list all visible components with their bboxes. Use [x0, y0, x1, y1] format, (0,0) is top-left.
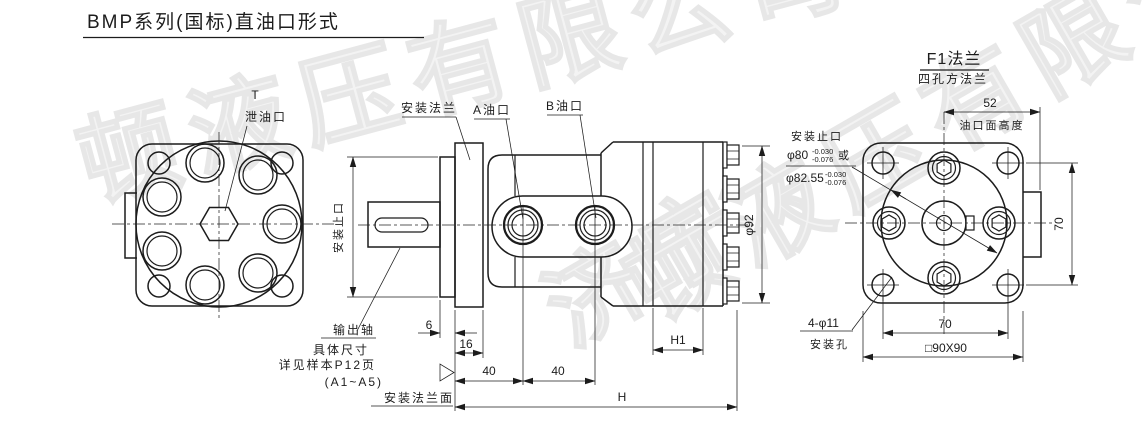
port-b-label: B油口 [546, 99, 584, 113]
port-face-height-label: 油口面高度 [960, 118, 1025, 132]
right-view: F1法兰 四孔方法兰 安装止口 φ80 -0.030 - [786, 50, 1078, 362]
title-block: BMP系列(国标)直油口形式 [83, 11, 424, 38]
dim-h1: H1 [670, 333, 686, 347]
or-word: 或 [838, 149, 851, 162]
dim-70-right: 70 [1052, 217, 1066, 231]
end-bolt [723, 142, 739, 168]
middle-view: 安装止口 [279, 99, 770, 411]
chamfer [601, 297, 613, 306]
spigot-dia-1-tol-dn: -0.076 [812, 155, 833, 164]
mount-hole [867, 269, 899, 301]
dim-body-dia: φ92 [742, 214, 756, 235]
spigot-label-vertical: 安装止口 [331, 201, 345, 253]
leader [456, 117, 470, 160]
pilot-spigot [440, 157, 455, 297]
end-bolt [723, 278, 739, 304]
drain-port-label: 泄油口 [245, 110, 287, 124]
drawing-sheet: 顿液压有限公司 顿液压有限公司 济宁 BMP系列(国标)直油口形式 [0, 0, 1142, 423]
page-title: BMP系列(国标)直油口形式 [87, 11, 340, 33]
corner-hole [148, 275, 170, 297]
bolt-hole [186, 144, 224, 182]
side-tab [125, 193, 137, 258]
end-bolt [723, 210, 739, 236]
t-port-label: T [251, 88, 260, 102]
end-bolt [723, 244, 739, 270]
shaft-note-2: 详见样本P12页 [279, 357, 376, 372]
dim-16: 16 [459, 337, 473, 351]
drain-leader [225, 126, 247, 211]
shaft-note-1: 具体尺寸 [313, 343, 369, 357]
shaft-leader [357, 248, 400, 331]
spigot-dia-leader [852, 167, 997, 253]
bolt-hole [186, 266, 224, 304]
chamfer [601, 142, 613, 153]
bolt-hole [143, 178, 181, 216]
mounting-flange-label: 安装法兰 [401, 100, 457, 115]
dim-52: 52 [983, 96, 997, 110]
spigot-dia-2-tol-dn: -0.076 [825, 178, 846, 187]
output-shaft [368, 202, 440, 247]
spigot-label: 安装止口 [791, 129, 843, 143]
output-shaft-label: 输出轴 [333, 322, 375, 337]
leader [580, 115, 596, 218]
left-view: T 泄油口 [112, 88, 334, 318]
bolt-hole [239, 254, 277, 292]
shaft-note-3: (A1~A5) [325, 375, 383, 389]
dim-40a: 40 [482, 364, 496, 378]
datum-triangle [440, 364, 454, 381]
spigot-dia-1: φ80 [787, 148, 808, 162]
spigot-dia-arrow [891, 190, 906, 199]
bolt-hole [143, 232, 181, 270]
corner-hole [148, 152, 170, 174]
f1-flange-subheading: 四孔方法兰 [918, 71, 988, 86]
spigot-dia-2: φ82.55 [786, 171, 824, 185]
mount-holes-label: 4-φ11 [808, 316, 839, 330]
dim-70-bottom: 70 [938, 317, 952, 331]
end-bolt [723, 176, 739, 202]
dim-h: H [618, 390, 627, 404]
f1-flange-heading: F1法兰 [927, 50, 982, 68]
dim-6: 6 [426, 318, 433, 332]
technical-drawing: BMP系列(国标)直油口形式 T 泄油口 [0, 0, 1142, 423]
leader [506, 119, 523, 219]
side-tab [1023, 192, 1041, 257]
dim-square: □90X90 [925, 341, 967, 355]
flange-face-label: 安装法兰面 [384, 390, 454, 405]
mount-holes-sublabel: 安装孔 [810, 337, 849, 351]
port-a-label: A油口 [473, 103, 511, 117]
dim-40b: 40 [551, 364, 565, 378]
mount-hole [992, 147, 1024, 179]
mount-hole [867, 147, 899, 179]
bolt-hole [239, 156, 277, 194]
port-boss [492, 196, 632, 257]
